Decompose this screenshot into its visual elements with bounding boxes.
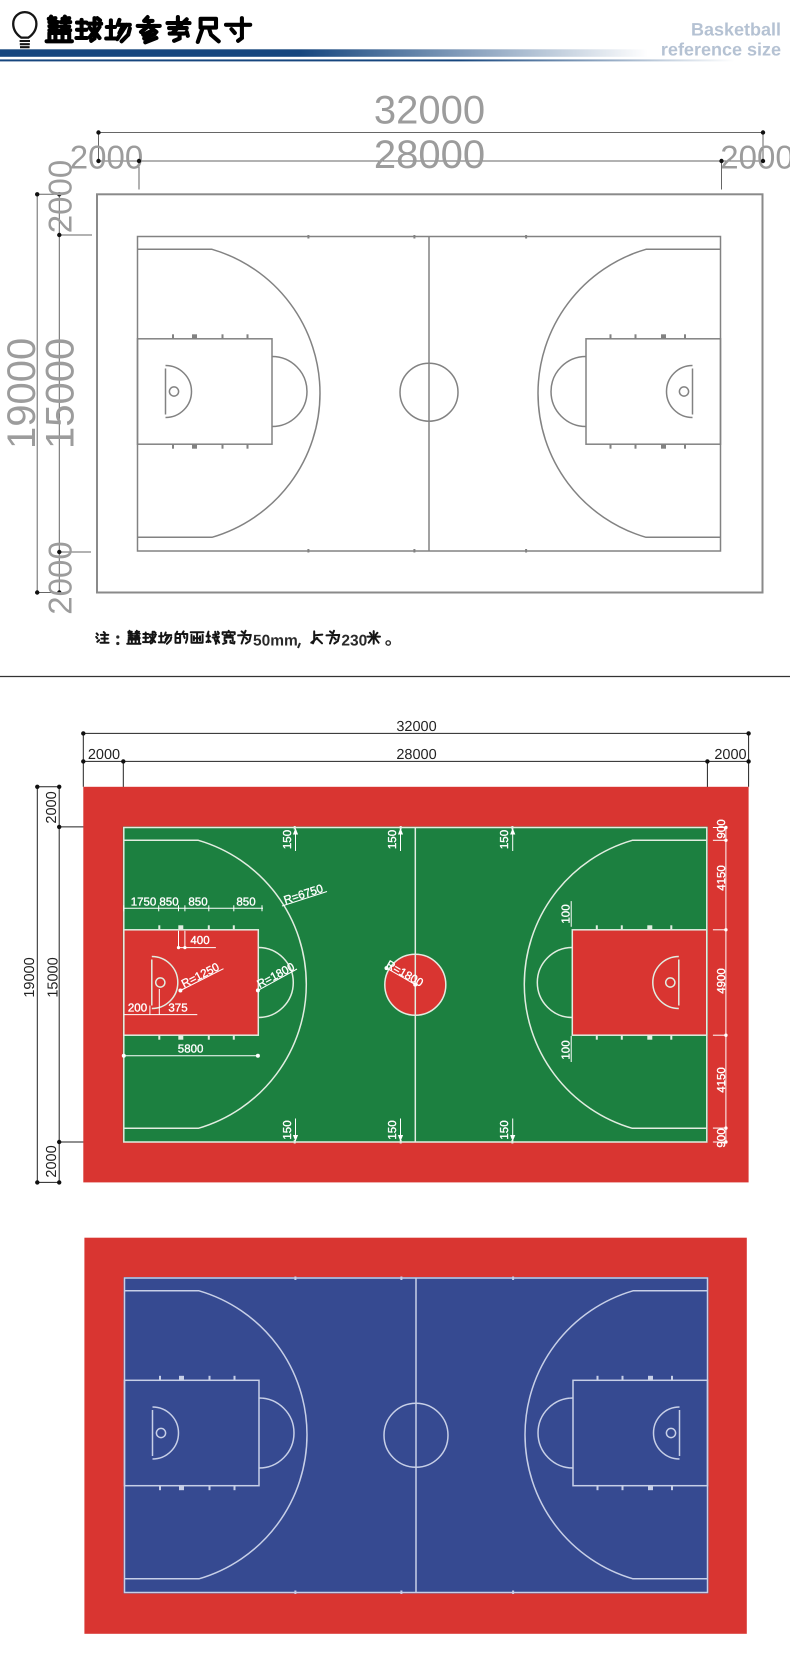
svg-text:900: 900 — [716, 1128, 728, 1147]
svg-text:150: 150 — [387, 1120, 399, 1139]
svg-text:28000: 28000 — [374, 133, 485, 177]
svg-text:19000: 19000 — [0, 338, 44, 449]
svg-text:15000: 15000 — [45, 957, 61, 997]
svg-text:850: 850 — [159, 897, 178, 909]
svg-text:4150: 4150 — [716, 865, 728, 891]
svg-text:2000: 2000 — [720, 139, 790, 176]
svg-text:2000: 2000 — [41, 160, 78, 233]
svg-text:28000: 28000 — [396, 747, 436, 763]
svg-text:32000: 32000 — [374, 89, 485, 133]
svg-text:2000: 2000 — [44, 1145, 60, 1177]
svg-text:50mm: 50mm — [253, 633, 298, 650]
svg-text:1750: 1750 — [131, 897, 157, 909]
svg-text:400: 400 — [190, 935, 209, 947]
svg-text:850: 850 — [188, 897, 207, 909]
svg-text:reference size: reference size — [661, 40, 781, 60]
svg-text:150: 150 — [499, 1120, 511, 1139]
svg-text:150: 150 — [282, 1120, 294, 1139]
svg-text:5800: 5800 — [178, 1044, 204, 1056]
svg-text:850: 850 — [236, 897, 255, 909]
svg-text:19000: 19000 — [22, 957, 38, 997]
svg-text:2000: 2000 — [714, 747, 746, 763]
svg-text:4150: 4150 — [716, 1067, 728, 1093]
svg-text:2000: 2000 — [70, 139, 143, 176]
svg-text:150: 150 — [499, 830, 511, 849]
svg-text:Basketball: Basketball — [691, 20, 781, 40]
svg-text:2000: 2000 — [88, 747, 120, 763]
svg-text:900: 900 — [716, 819, 728, 838]
svg-text:15000: 15000 — [39, 338, 83, 449]
svg-text:150: 150 — [282, 830, 294, 849]
svg-text:4900: 4900 — [716, 968, 728, 994]
svg-text:32000: 32000 — [396, 719, 436, 735]
svg-text:2000: 2000 — [41, 541, 78, 614]
svg-text:230: 230 — [341, 633, 367, 650]
svg-text:2000: 2000 — [44, 791, 60, 823]
svg-text:150: 150 — [387, 830, 399, 849]
svg-text:200: 200 — [128, 1003, 147, 1015]
svg-text:375: 375 — [168, 1003, 187, 1015]
